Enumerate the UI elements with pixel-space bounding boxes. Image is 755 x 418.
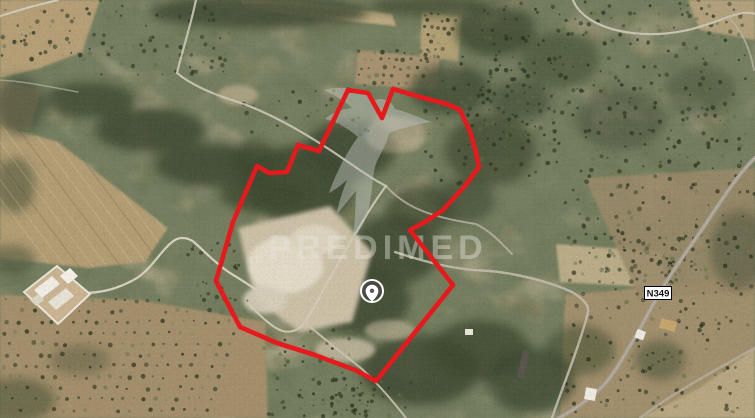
road-badge-label: N349 (647, 289, 670, 300)
pin-hole (370, 289, 374, 293)
watermark-text: PREDIMED (268, 229, 487, 267)
map-viewport[interactable]: PREDIMED N349 (0, 0, 755, 418)
location-pin-marker[interactable] (361, 280, 383, 302)
image-grain (0, 0, 755, 418)
satellite-map[interactable]: PREDIMED N349 (0, 0, 755, 418)
road-badge-n349: N349 (645, 287, 672, 300)
